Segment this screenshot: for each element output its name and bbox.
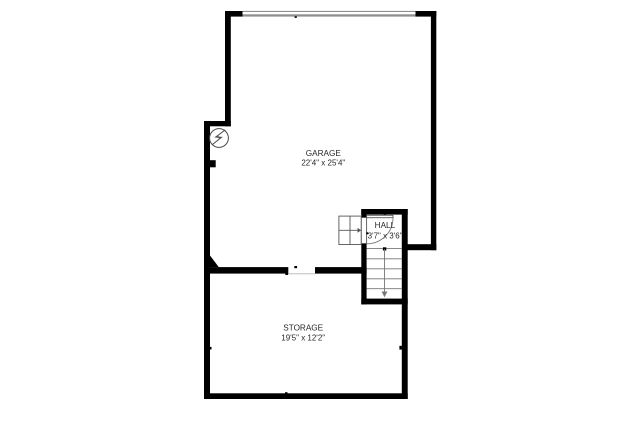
svg-text:19'5" x 12'2": 19'5" x 12'2" — [281, 334, 325, 343]
svg-text:STORAGE: STORAGE — [283, 323, 323, 332]
svg-text:GARAGE: GARAGE — [306, 149, 342, 158]
svg-text:HALL: HALL — [375, 221, 396, 230]
svg-text:3'7" x 3'6": 3'7" x 3'6" — [368, 231, 403, 240]
svg-text:22'4" x 25'4": 22'4" x 25'4" — [301, 158, 345, 167]
